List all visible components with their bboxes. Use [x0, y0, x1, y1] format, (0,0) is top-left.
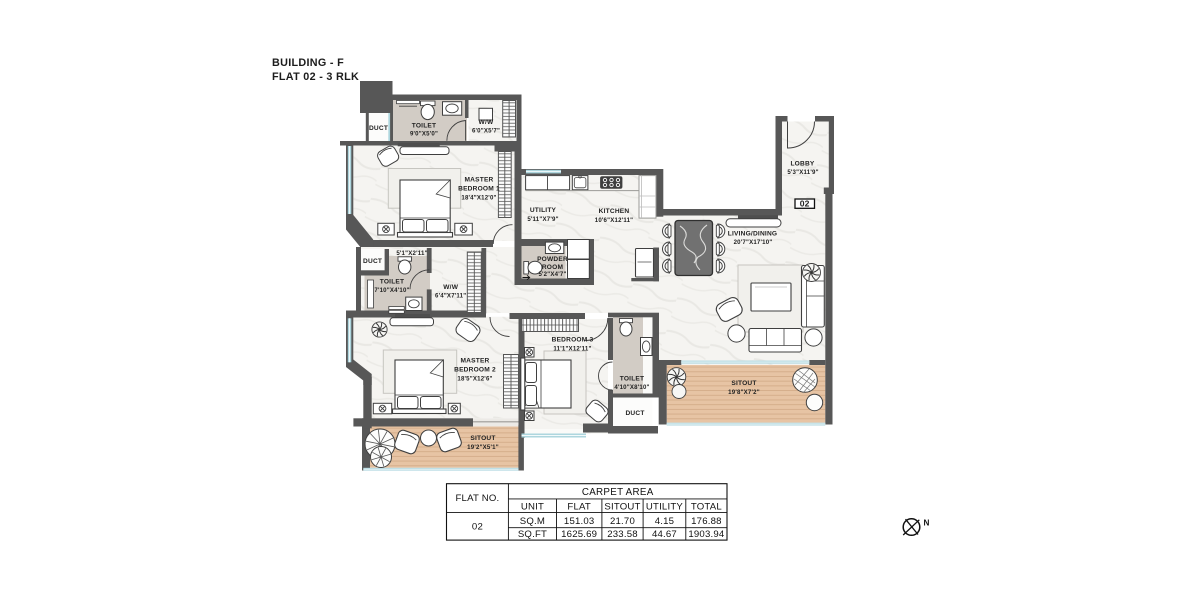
- svg-text:5'1"X2'11": 5'1"X2'11": [396, 250, 427, 257]
- svg-text:02: 02: [472, 522, 483, 533]
- svg-text:4.15: 4.15: [655, 516, 674, 527]
- svg-text:6'4"X7'11": 6'4"X7'11": [435, 293, 466, 300]
- svg-text:19'2"X5'1": 19'2"X5'1": [467, 444, 499, 451]
- svg-text:MASTER: MASTER: [460, 358, 489, 365]
- svg-text:POWDER: POWDER: [537, 256, 568, 263]
- svg-text:5'11"X7'9": 5'11"X7'9": [527, 216, 558, 223]
- svg-text:9'0"X5'0": 9'0"X5'0": [410, 131, 438, 138]
- svg-text:44.67: 44.67: [652, 529, 677, 540]
- svg-text:6'0"X5'7": 6'0"X5'7": [472, 128, 500, 135]
- svg-text:02: 02: [800, 198, 810, 208]
- svg-text:5'2"X4'7": 5'2"X4'7": [538, 271, 566, 278]
- svg-text:LOBBY: LOBBY: [790, 161, 814, 168]
- svg-text:SITOUT: SITOUT: [470, 435, 495, 442]
- svg-text:UTILITY: UTILITY: [530, 207, 557, 214]
- svg-text:DUCT: DUCT: [363, 258, 382, 265]
- svg-text:UTILITY: UTILITY: [646, 501, 684, 512]
- svg-text:11'1"X12'11": 11'1"X12'11": [553, 346, 591, 353]
- svg-text:BEDROOM 3: BEDROOM 3: [552, 337, 594, 344]
- svg-text:N: N: [923, 519, 929, 528]
- svg-text:SITOUT: SITOUT: [604, 501, 640, 512]
- svg-text:SQ.M: SQ.M: [520, 516, 545, 527]
- svg-text:TOTAL: TOTAL: [691, 501, 722, 512]
- svg-text:MASTER: MASTER: [464, 177, 493, 184]
- svg-text:LIVING/DINING: LIVING/DINING: [728, 231, 778, 238]
- svg-text:DUCT: DUCT: [369, 125, 388, 132]
- svg-text:20'7"X17'10": 20'7"X17'10": [734, 239, 773, 246]
- svg-text:176.88: 176.88: [691, 516, 722, 527]
- svg-text:FLAT 02 - 3 RLK: FLAT 02 - 3 RLK: [272, 71, 359, 83]
- svg-text:ROOM: ROOM: [542, 264, 564, 271]
- svg-text:21.70: 21.70: [610, 516, 635, 527]
- svg-text:1903.94: 1903.94: [688, 529, 725, 540]
- svg-text:SITOUT: SITOUT: [731, 380, 756, 387]
- svg-text:KITCHEN: KITCHEN: [599, 208, 630, 215]
- svg-text:TOILET: TOILET: [380, 279, 405, 286]
- svg-text:19'8"X7'2": 19'8"X7'2": [728, 389, 760, 396]
- svg-text:233.58: 233.58: [607, 529, 638, 540]
- svg-text:5'3"X11'9": 5'3"X11'9": [787, 169, 818, 176]
- svg-text:10'6"X12'11": 10'6"X12'11": [595, 217, 634, 224]
- svg-text:DUCT: DUCT: [625, 410, 644, 417]
- svg-text:18'4"X12'0": 18'4"X12'0": [461, 195, 496, 202]
- svg-text:BEDROOM 2: BEDROOM 2: [454, 367, 496, 374]
- svg-text:SQ.FT: SQ.FT: [518, 529, 547, 540]
- svg-text:151.03: 151.03: [564, 516, 595, 527]
- svg-text:FLAT NO.: FLAT NO.: [456, 493, 500, 504]
- svg-text:4'10"X8'10": 4'10"X8'10": [614, 384, 649, 391]
- svg-text:UNIT: UNIT: [521, 501, 544, 512]
- svg-text:TOILET: TOILET: [412, 123, 437, 130]
- svg-text:W/W: W/W: [443, 284, 458, 291]
- svg-text:18'5"X12'6": 18'5"X12'6": [457, 376, 492, 383]
- svg-text:TOILET: TOILET: [620, 376, 645, 383]
- svg-text:CARPET AREA: CARPET AREA: [582, 487, 654, 498]
- svg-text:W/W: W/W: [479, 119, 494, 126]
- svg-text:BEDROOM 1: BEDROOM 1: [458, 186, 500, 193]
- svg-text:7'10"X4'10": 7'10"X4'10": [374, 287, 409, 294]
- svg-text:1625.69: 1625.69: [561, 529, 597, 540]
- svg-text:BUILDING - F: BUILDING - F: [272, 57, 344, 69]
- svg-text:FLAT: FLAT: [567, 501, 591, 512]
